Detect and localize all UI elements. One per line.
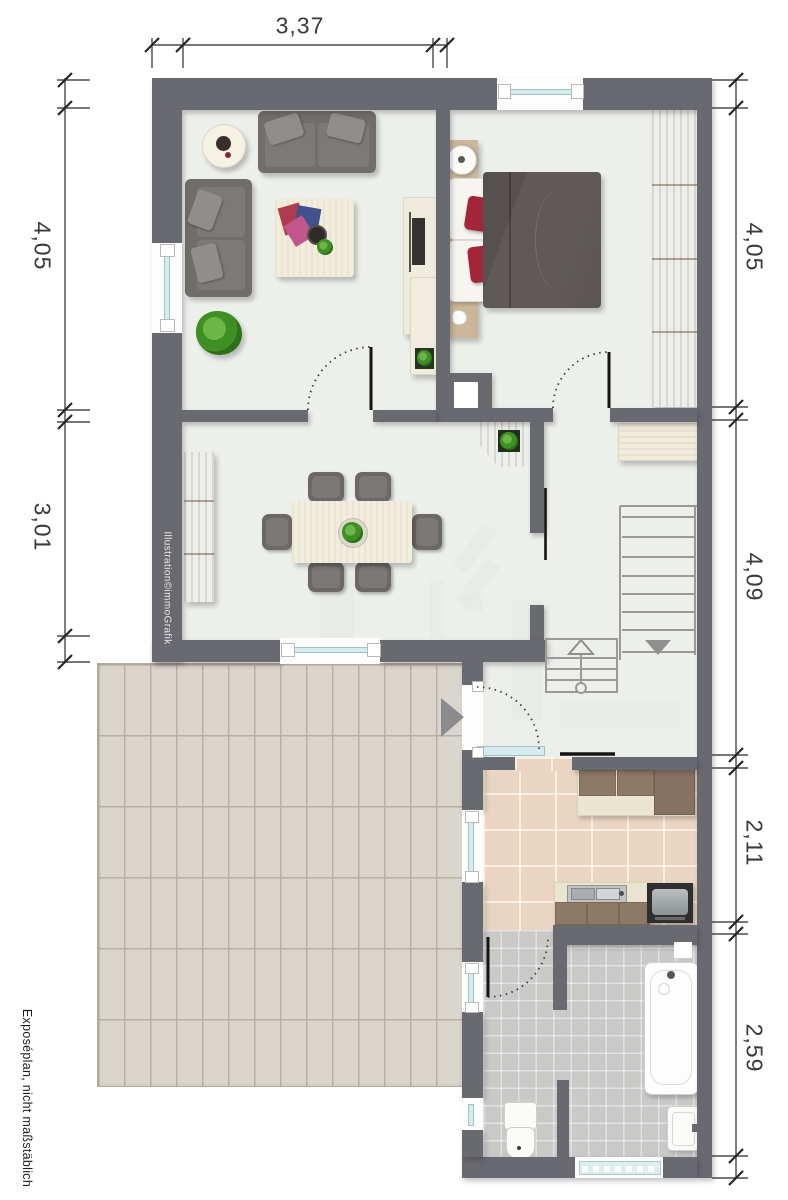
steps-arrow-up-icon bbox=[569, 640, 593, 654]
dimension-left bbox=[57, 73, 90, 669]
door-bedroom bbox=[553, 352, 609, 408]
door-entry-swing bbox=[477, 687, 539, 749]
entry-steps bbox=[546, 639, 617, 693]
dimension-label-right-bath: 2,59 bbox=[741, 1024, 768, 1073]
dimension-label-right-bedroom: 4,05 bbox=[741, 223, 768, 272]
floor-plan: 3,37 4,05 3,01 4,05 4,09 2,11 2,59 Illus… bbox=[0, 0, 788, 1200]
illustration-credit: Illustration©immoGrafik bbox=[162, 531, 173, 644]
plan-disclaimer: Exposéplan, nicht maßstäblich bbox=[20, 1009, 34, 1187]
dimension-label-right-hall: 4,09 bbox=[741, 553, 768, 602]
staircase-main bbox=[620, 506, 697, 660]
dimension-label-top-width: 3,37 bbox=[276, 13, 325, 40]
door-living-dining bbox=[308, 347, 371, 410]
dimension-label-right-kitchen: 2,11 bbox=[741, 819, 768, 866]
plan-annotations bbox=[0, 0, 788, 1200]
dimension-label-left-lower: 3,01 bbox=[29, 503, 56, 552]
dimension-top bbox=[145, 38, 454, 68]
door-bathroom bbox=[488, 937, 548, 997]
dimension-label-left-upper: 4,05 bbox=[29, 222, 56, 271]
entrance-arrow-icon bbox=[441, 698, 464, 737]
